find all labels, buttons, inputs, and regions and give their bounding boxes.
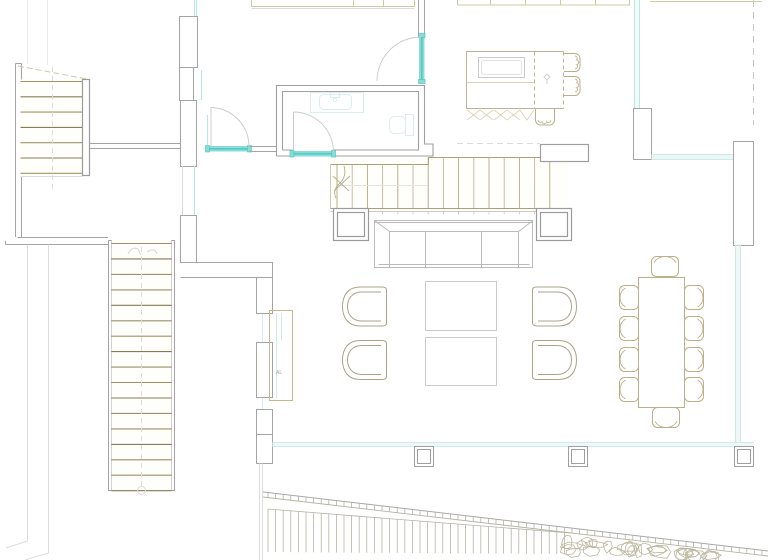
svg-text:AL: AL xyxy=(276,370,282,376)
